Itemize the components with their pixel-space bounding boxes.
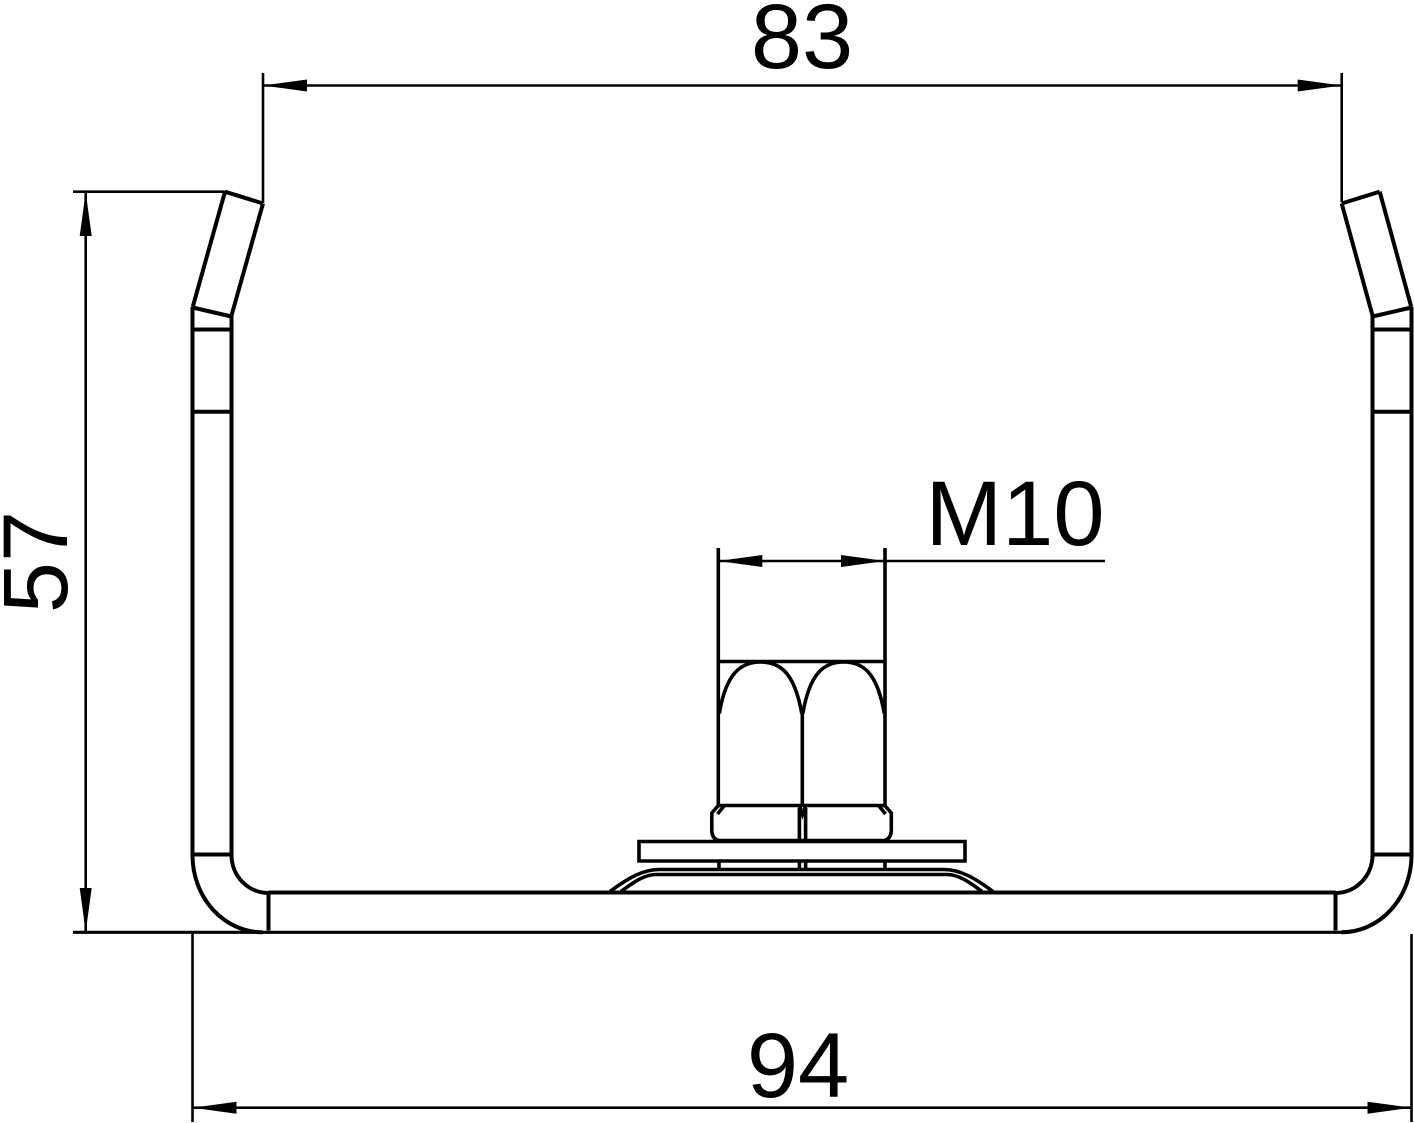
dimM10-label: M10 bbox=[926, 463, 1105, 565]
collar-right-side bbox=[884, 806, 891, 841]
dimension-thread: M10 bbox=[718, 463, 1105, 567]
right-lip-outer-edge bbox=[1380, 192, 1412, 307]
dimension-bottom-width: 94 bbox=[193, 934, 1412, 1122]
dim83-arrow-left bbox=[263, 80, 307, 92]
left-lip-bend-line bbox=[193, 308, 232, 317]
drawing-canvas: 83 57 94 M10 bbox=[0, 0, 1414, 1123]
dim83-arrow-right bbox=[1298, 80, 1342, 92]
floor-boss-inner bbox=[621, 875, 982, 892]
bottom-right-outer-arc bbox=[1342, 855, 1412, 932]
right-lip-top-edge bbox=[1342, 192, 1380, 204]
dim94-arrow-left bbox=[193, 1102, 237, 1114]
dim57-label: 57 bbox=[0, 511, 87, 613]
left-lip-outer-edge bbox=[193, 192, 225, 307]
dim57-arrow-bottom bbox=[80, 888, 92, 932]
fastener-assembly bbox=[610, 548, 993, 892]
right-lip-inner-edge bbox=[1342, 204, 1373, 316]
left-lip-top-edge bbox=[225, 192, 263, 204]
dimension-top-width: 83 bbox=[263, 0, 1342, 203]
dimM10-arrow-right bbox=[841, 555, 885, 567]
nut-chamfer-arc-left bbox=[719, 662, 802, 714]
collar-left-side bbox=[712, 806, 719, 841]
technical-drawing: 83 57 94 M10 bbox=[0, 0, 1414, 1123]
bottom-left-inner-arc bbox=[232, 855, 269, 893]
right-lip-bend-line bbox=[1373, 308, 1412, 317]
left-lip-inner-edge bbox=[232, 204, 264, 316]
washer-plate bbox=[639, 842, 965, 862]
dimM10-arrow-left bbox=[718, 555, 762, 567]
bottom-right-inner-arc bbox=[1336, 855, 1373, 893]
nut-chamfer-arc-right bbox=[803, 662, 885, 714]
dim83-label: 83 bbox=[751, 0, 853, 88]
dim57-arrow-top bbox=[80, 192, 92, 236]
dim94-label: 94 bbox=[747, 1015, 849, 1117]
dim94-arrow-right bbox=[1368, 1102, 1412, 1114]
bottom-left-outer-arc bbox=[192, 855, 262, 932]
